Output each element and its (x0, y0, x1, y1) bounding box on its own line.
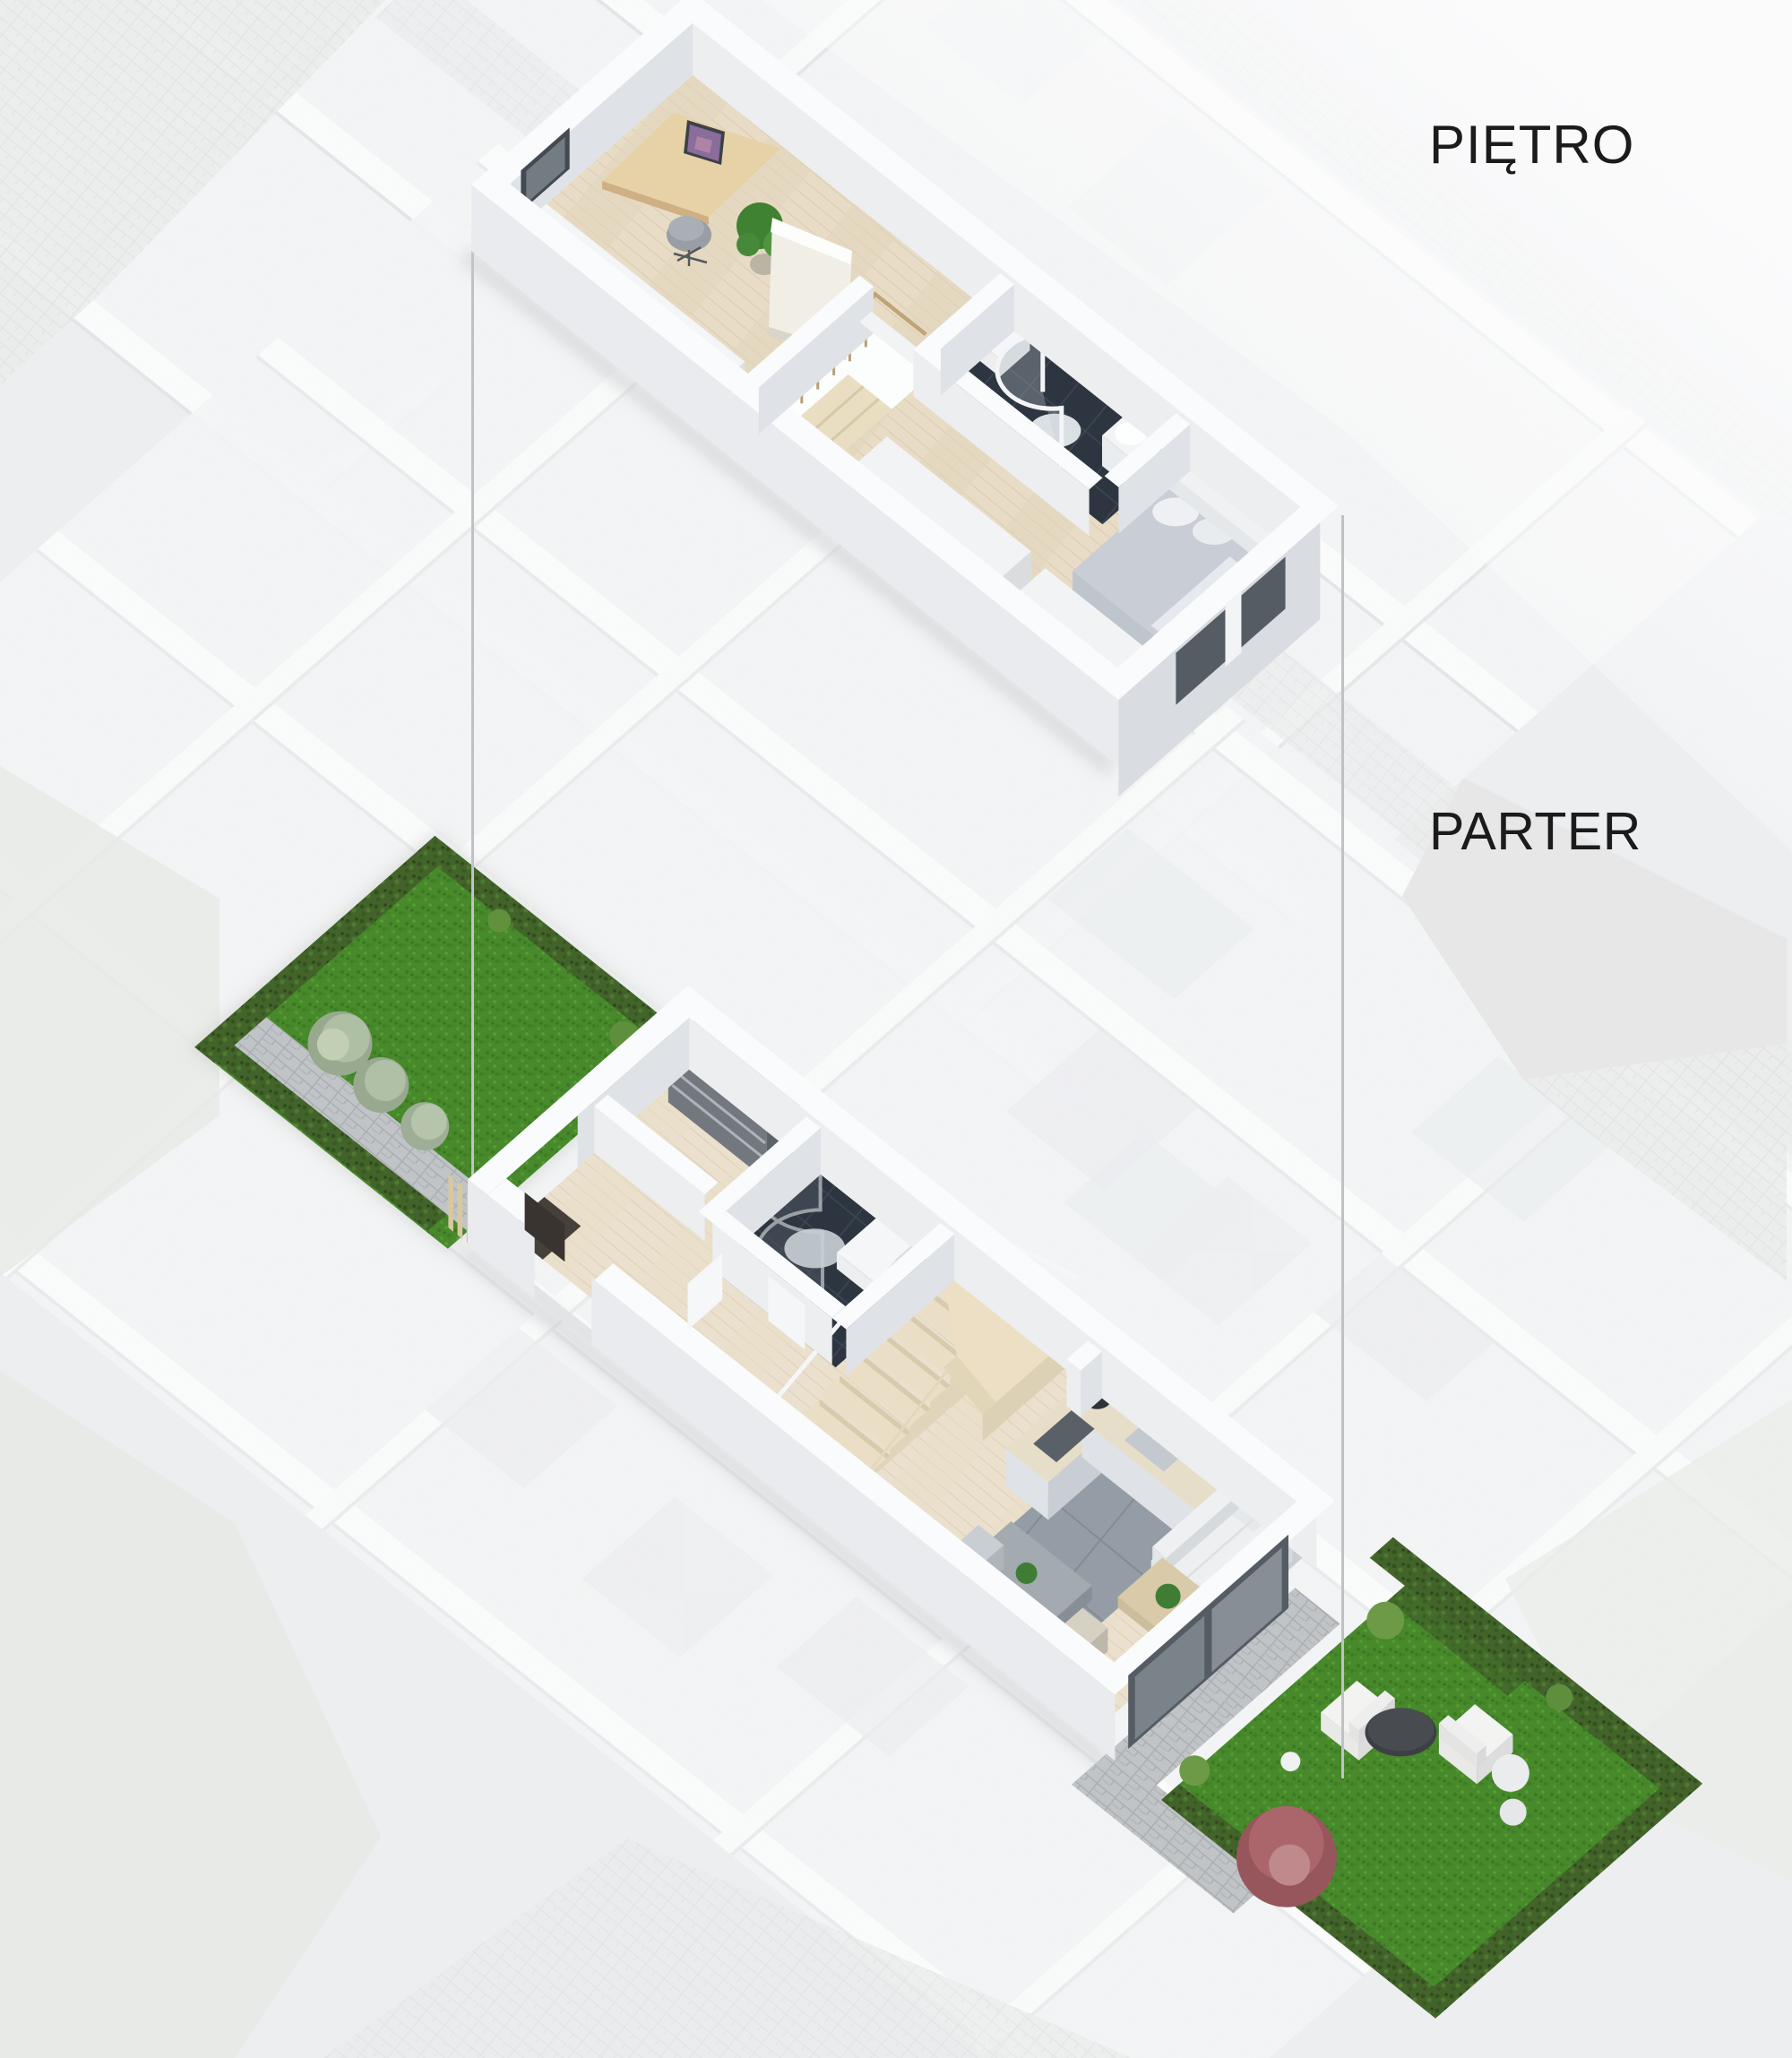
svg-text:PIĘTRO: PIĘTRO (1429, 115, 1634, 175)
svg-text:PARTER: PARTER (1429, 802, 1641, 861)
